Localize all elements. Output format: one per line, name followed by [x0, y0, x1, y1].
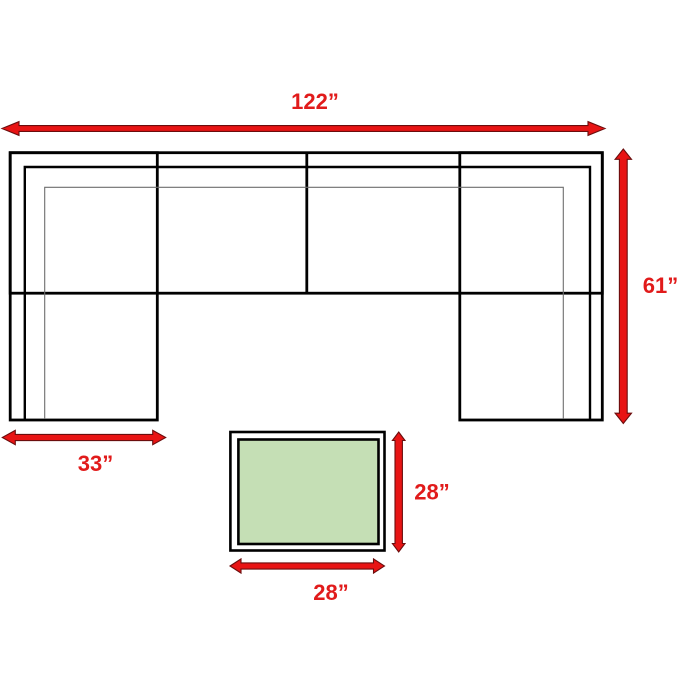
svg-text:33”: 33” — [78, 451, 113, 476]
svg-text:61”: 61” — [643, 273, 678, 298]
svg-text:122”: 122” — [291, 89, 339, 114]
svg-text:28”: 28” — [414, 480, 449, 505]
svg-text:28”: 28” — [313, 580, 348, 605]
